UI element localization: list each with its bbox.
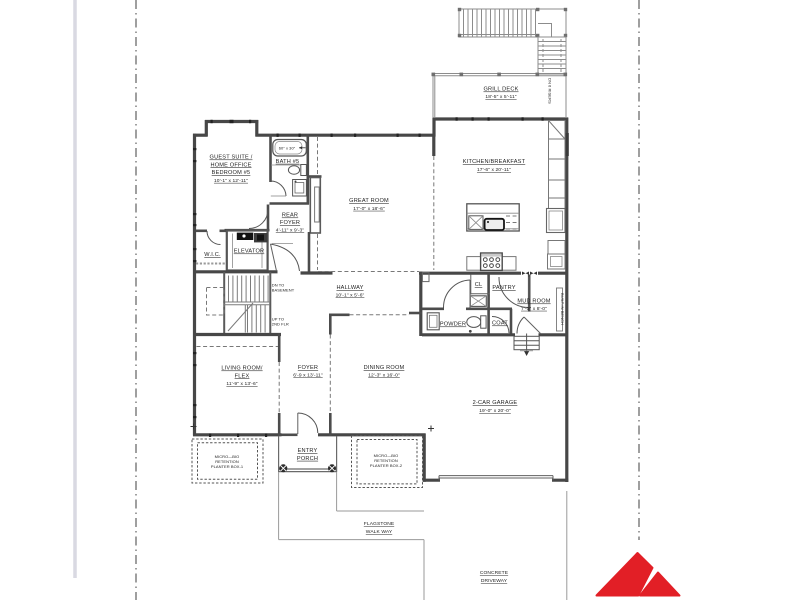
- svg-text:ENTRY: ENTRY: [298, 448, 318, 454]
- svg-text:PANTRY: PANTRY: [492, 285, 515, 291]
- svg-text:FLEX: FLEX: [235, 373, 250, 379]
- svg-text:GUEST SUITE /: GUEST SUITE /: [210, 155, 253, 161]
- svg-text:REAR: REAR: [282, 213, 298, 219]
- svg-text:60" x 30": 60" x 30": [279, 146, 296, 151]
- svg-text:2ND FLR: 2ND FLR: [272, 322, 289, 327]
- svg-text:17'-0" x 18'-6": 17'-0" x 18'-6": [353, 206, 385, 212]
- svg-text:FLAGSTONE: FLAGSTONE: [364, 521, 395, 527]
- svg-text:19'-0" x 20'-0": 19'-0" x 20'-0": [479, 408, 511, 414]
- svg-text:6'-9 x 13'-11": 6'-9 x 13'-11": [293, 373, 323, 379]
- svg-text:HALLWAY: HALLWAY: [336, 285, 363, 291]
- svg-text:LIVING ROOM/: LIVING ROOM/: [221, 366, 262, 372]
- svg-text:FOYER: FOYER: [280, 220, 300, 226]
- svg-text:PORCH: PORCH: [297, 456, 318, 462]
- svg-text:GREAT ROOM: GREAT ROOM: [349, 198, 389, 204]
- svg-text:12'-3" x 16'-0": 12'-3" x 16'-0": [368, 373, 400, 379]
- svg-text:GRILL DECK: GRILL DECK: [483, 87, 518, 93]
- svg-text:CONCRETE: CONCRETE: [480, 570, 509, 576]
- svg-text:10'-1" x 5'-6": 10'-1" x 5'-6": [336, 293, 365, 299]
- svg-text:4'-11" x 9'-3": 4'-11" x 9'-3": [276, 228, 305, 234]
- svg-text:CL: CL: [475, 282, 483, 288]
- svg-text:MUD ROOM: MUD ROOM: [517, 299, 550, 305]
- svg-text:ELEVATOR: ELEVATOR: [234, 249, 265, 255]
- svg-text:17'-6" x 20'-11": 17'-6" x 20'-11": [477, 167, 511, 173]
- svg-text:10'-1" x 12'-11": 10'-1" x 12'-11": [214, 178, 248, 184]
- svg-text:DN 6 RISERS: DN 6 RISERS: [548, 78, 553, 104]
- svg-text:W.I.C.: W.I.C.: [204, 252, 221, 258]
- svg-text:7'-0" x 8'-0": 7'-0" x 8'-0": [521, 306, 547, 312]
- svg-text:KITCHEN/BREAKFAST: KITCHEN/BREAKFAST: [463, 159, 526, 165]
- svg-text:2-CAR GARAGE: 2-CAR GARAGE: [473, 400, 518, 406]
- svg-text:BUILT-IN BENCH: BUILT-IN BENCH: [560, 293, 565, 325]
- svg-text:HOME OFFICE: HOME OFFICE: [210, 162, 251, 168]
- svg-text:WALK WAY: WALK WAY: [366, 529, 393, 535]
- svg-text:DRIVEWAY: DRIVEWAY: [481, 578, 508, 584]
- svg-text:PLANTER BOX-1: PLANTER BOX-1: [211, 464, 244, 469]
- svg-text:BEDROOM #5: BEDROOM #5: [212, 170, 251, 176]
- svg-text:POWDER: POWDER: [440, 322, 466, 328]
- svg-text:BASEMENT: BASEMENT: [272, 288, 295, 293]
- svg-text:18'-5" x 5'-11": 18'-5" x 5'-11": [485, 94, 516, 100]
- svg-text:DINING ROOM: DINING ROOM: [364, 365, 405, 371]
- svg-text:FOYER: FOYER: [298, 365, 318, 371]
- svg-text:BATH #5: BATH #5: [276, 159, 300, 165]
- svg-text:PLANTER BOX-2: PLANTER BOX-2: [370, 463, 403, 468]
- svg-text:11'-9" x 13'-6": 11'-9" x 13'-6": [226, 381, 257, 387]
